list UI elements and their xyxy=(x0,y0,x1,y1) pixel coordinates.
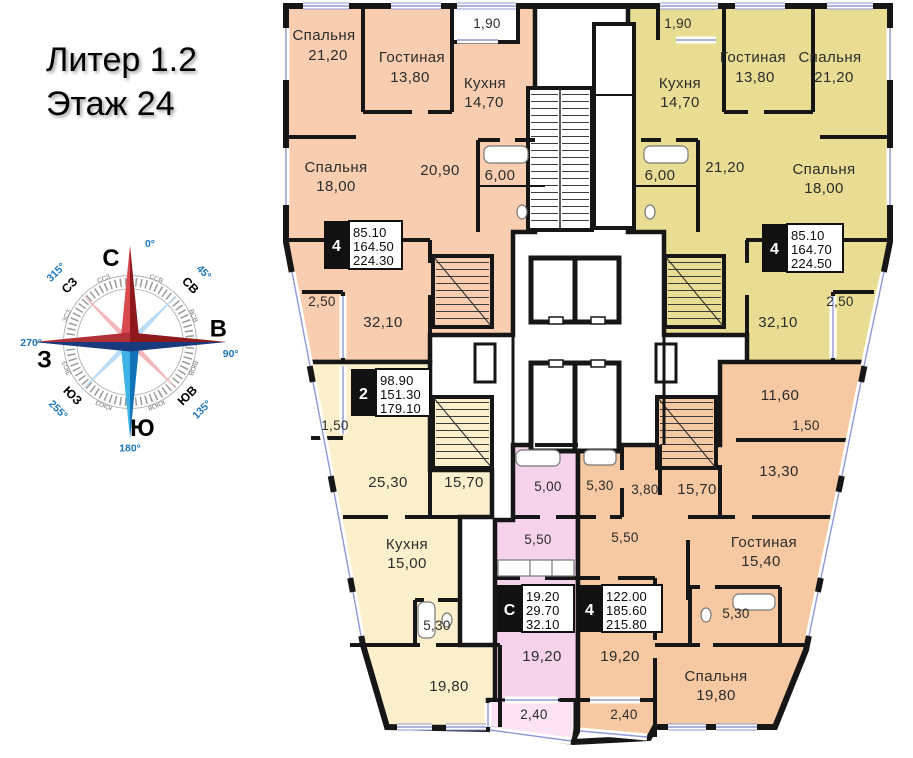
toilet-icon xyxy=(701,608,711,622)
apartment-stat: 19.20 xyxy=(526,589,560,604)
room-area: 2,50 xyxy=(826,294,853,309)
kitchen-counter-icon xyxy=(498,560,574,576)
room-area: 18,00 xyxy=(804,180,844,197)
room-area: 2,40 xyxy=(610,707,637,722)
bathtub-icon xyxy=(584,450,616,465)
room-name: Спальня xyxy=(792,161,855,178)
apartment-stat: 29.70 xyxy=(526,603,560,618)
room-area: 13,80 xyxy=(390,69,430,86)
room-area: 6,00 xyxy=(485,167,516,184)
room-area: 14,70 xyxy=(464,94,504,111)
apartment-stat: 98.90 xyxy=(380,373,414,388)
room-area: 15,70 xyxy=(444,474,484,491)
vent-shaft xyxy=(656,344,676,382)
apartment-stat: 85.10 xyxy=(353,225,387,240)
room-area: 19,80 xyxy=(429,678,469,695)
room-name: Кухня xyxy=(464,75,506,92)
bathtub-icon xyxy=(516,450,560,466)
apartment-type-badge: 4 xyxy=(585,602,594,619)
room-area: 5,30 xyxy=(722,606,749,621)
info-badge-apt-4room-top-right: 4 85.10 164.70 224.50 xyxy=(762,224,843,272)
bathtub-icon xyxy=(484,146,528,163)
room-area: 1,50 xyxy=(321,418,348,433)
apartment-stat: 164.50 xyxy=(353,239,394,254)
apartment-type-badge: 4 xyxy=(332,238,341,255)
room-area: 32,10 xyxy=(758,314,798,331)
room-area: 20,90 xyxy=(420,162,460,179)
room-name: Кухня xyxy=(659,75,701,92)
vent-shaft xyxy=(475,344,495,382)
apartment-type-badge: С xyxy=(504,602,516,619)
room-name: Спальня xyxy=(304,159,367,176)
apartment-stat: 185.60 xyxy=(606,603,647,618)
apartment-stat: 164.70 xyxy=(791,242,832,257)
room-area: 21,20 xyxy=(814,69,854,86)
room-area: 11,60 xyxy=(761,387,799,404)
room-area: 6,00 xyxy=(645,167,676,184)
info-badge-apt-4room-top-left: 4 85.10 164.50 224.30 xyxy=(324,221,402,269)
bathtub-icon xyxy=(644,146,688,163)
room-name: Спальня xyxy=(684,668,747,685)
room-area: 21,20 xyxy=(705,159,745,176)
apartment-stat: 151.30 xyxy=(380,387,421,402)
room-name: Спальня xyxy=(292,27,355,44)
apartment-stat: 224.30 xyxy=(353,253,394,268)
room-area: 2,40 xyxy=(520,707,547,722)
room-area: 19,20 xyxy=(522,648,562,665)
room-name: Кухня xyxy=(386,536,428,553)
room-area: 13,80 xyxy=(735,69,775,86)
room-name: Гостиная xyxy=(379,49,445,66)
apartment-stat: 215.80 xyxy=(606,617,647,632)
room-area: 5,50 xyxy=(524,532,551,547)
room-area: 1,90 xyxy=(473,16,500,31)
room-area: 19,80 xyxy=(696,687,736,704)
room-area: 14,70 xyxy=(660,94,700,111)
room-area: 32,10 xyxy=(363,314,403,331)
toilet-icon xyxy=(517,205,527,219)
room-area: 21,20 xyxy=(308,47,348,64)
room-area: 3,80 xyxy=(631,482,658,497)
info-badge-apt-studio: С 19.20 29.70 32.10 xyxy=(497,585,574,632)
room-area: 5,50 xyxy=(611,530,638,545)
room-name: Спальня xyxy=(798,49,861,66)
apartment-type-badge: 2 xyxy=(359,386,368,403)
apartment-stat: 122.00 xyxy=(606,589,647,604)
room-area: 15,70 xyxy=(677,481,717,498)
room-area: 15,40 xyxy=(741,553,781,570)
apartment-stat: 85.10 xyxy=(791,228,825,243)
room-area: 19,20 xyxy=(600,648,640,665)
room-area: 5,30 xyxy=(423,618,450,633)
toilet-icon xyxy=(645,205,655,219)
room-area: 5,00 xyxy=(534,479,561,494)
room-area: 2,50 xyxy=(308,294,335,309)
floorplan-page: Литер 1.2 Этаж 24 С 0° В xyxy=(0,0,913,758)
floor-plan: Спальня 21,20 Гостиная 13,80 1,90 Кухня … xyxy=(0,0,913,758)
apartment-stat: 224.50 xyxy=(791,256,832,271)
room-area: 5,30 xyxy=(586,478,613,493)
apartment-stat: 179.10 xyxy=(380,401,421,416)
room-area: 15,00 xyxy=(387,555,427,572)
apartment-stat: 32.10 xyxy=(526,617,560,632)
apartment-type-badge: 4 xyxy=(770,241,779,258)
room-area: 18,00 xyxy=(316,178,356,195)
room-name: Гостиная xyxy=(720,49,786,66)
room-name: Гостиная xyxy=(731,534,797,551)
room-area: 13,30 xyxy=(759,463,799,480)
room-area: 25,30 xyxy=(368,474,408,491)
room-area: 1,90 xyxy=(664,16,691,31)
info-badge-apt-2room: 2 98.90 151.30 179.10 xyxy=(351,369,430,416)
info-badge-apt-4room-bottom-right: 4 122.00 185.60 215.80 xyxy=(577,585,662,632)
room-area: 1,50 xyxy=(792,418,819,433)
